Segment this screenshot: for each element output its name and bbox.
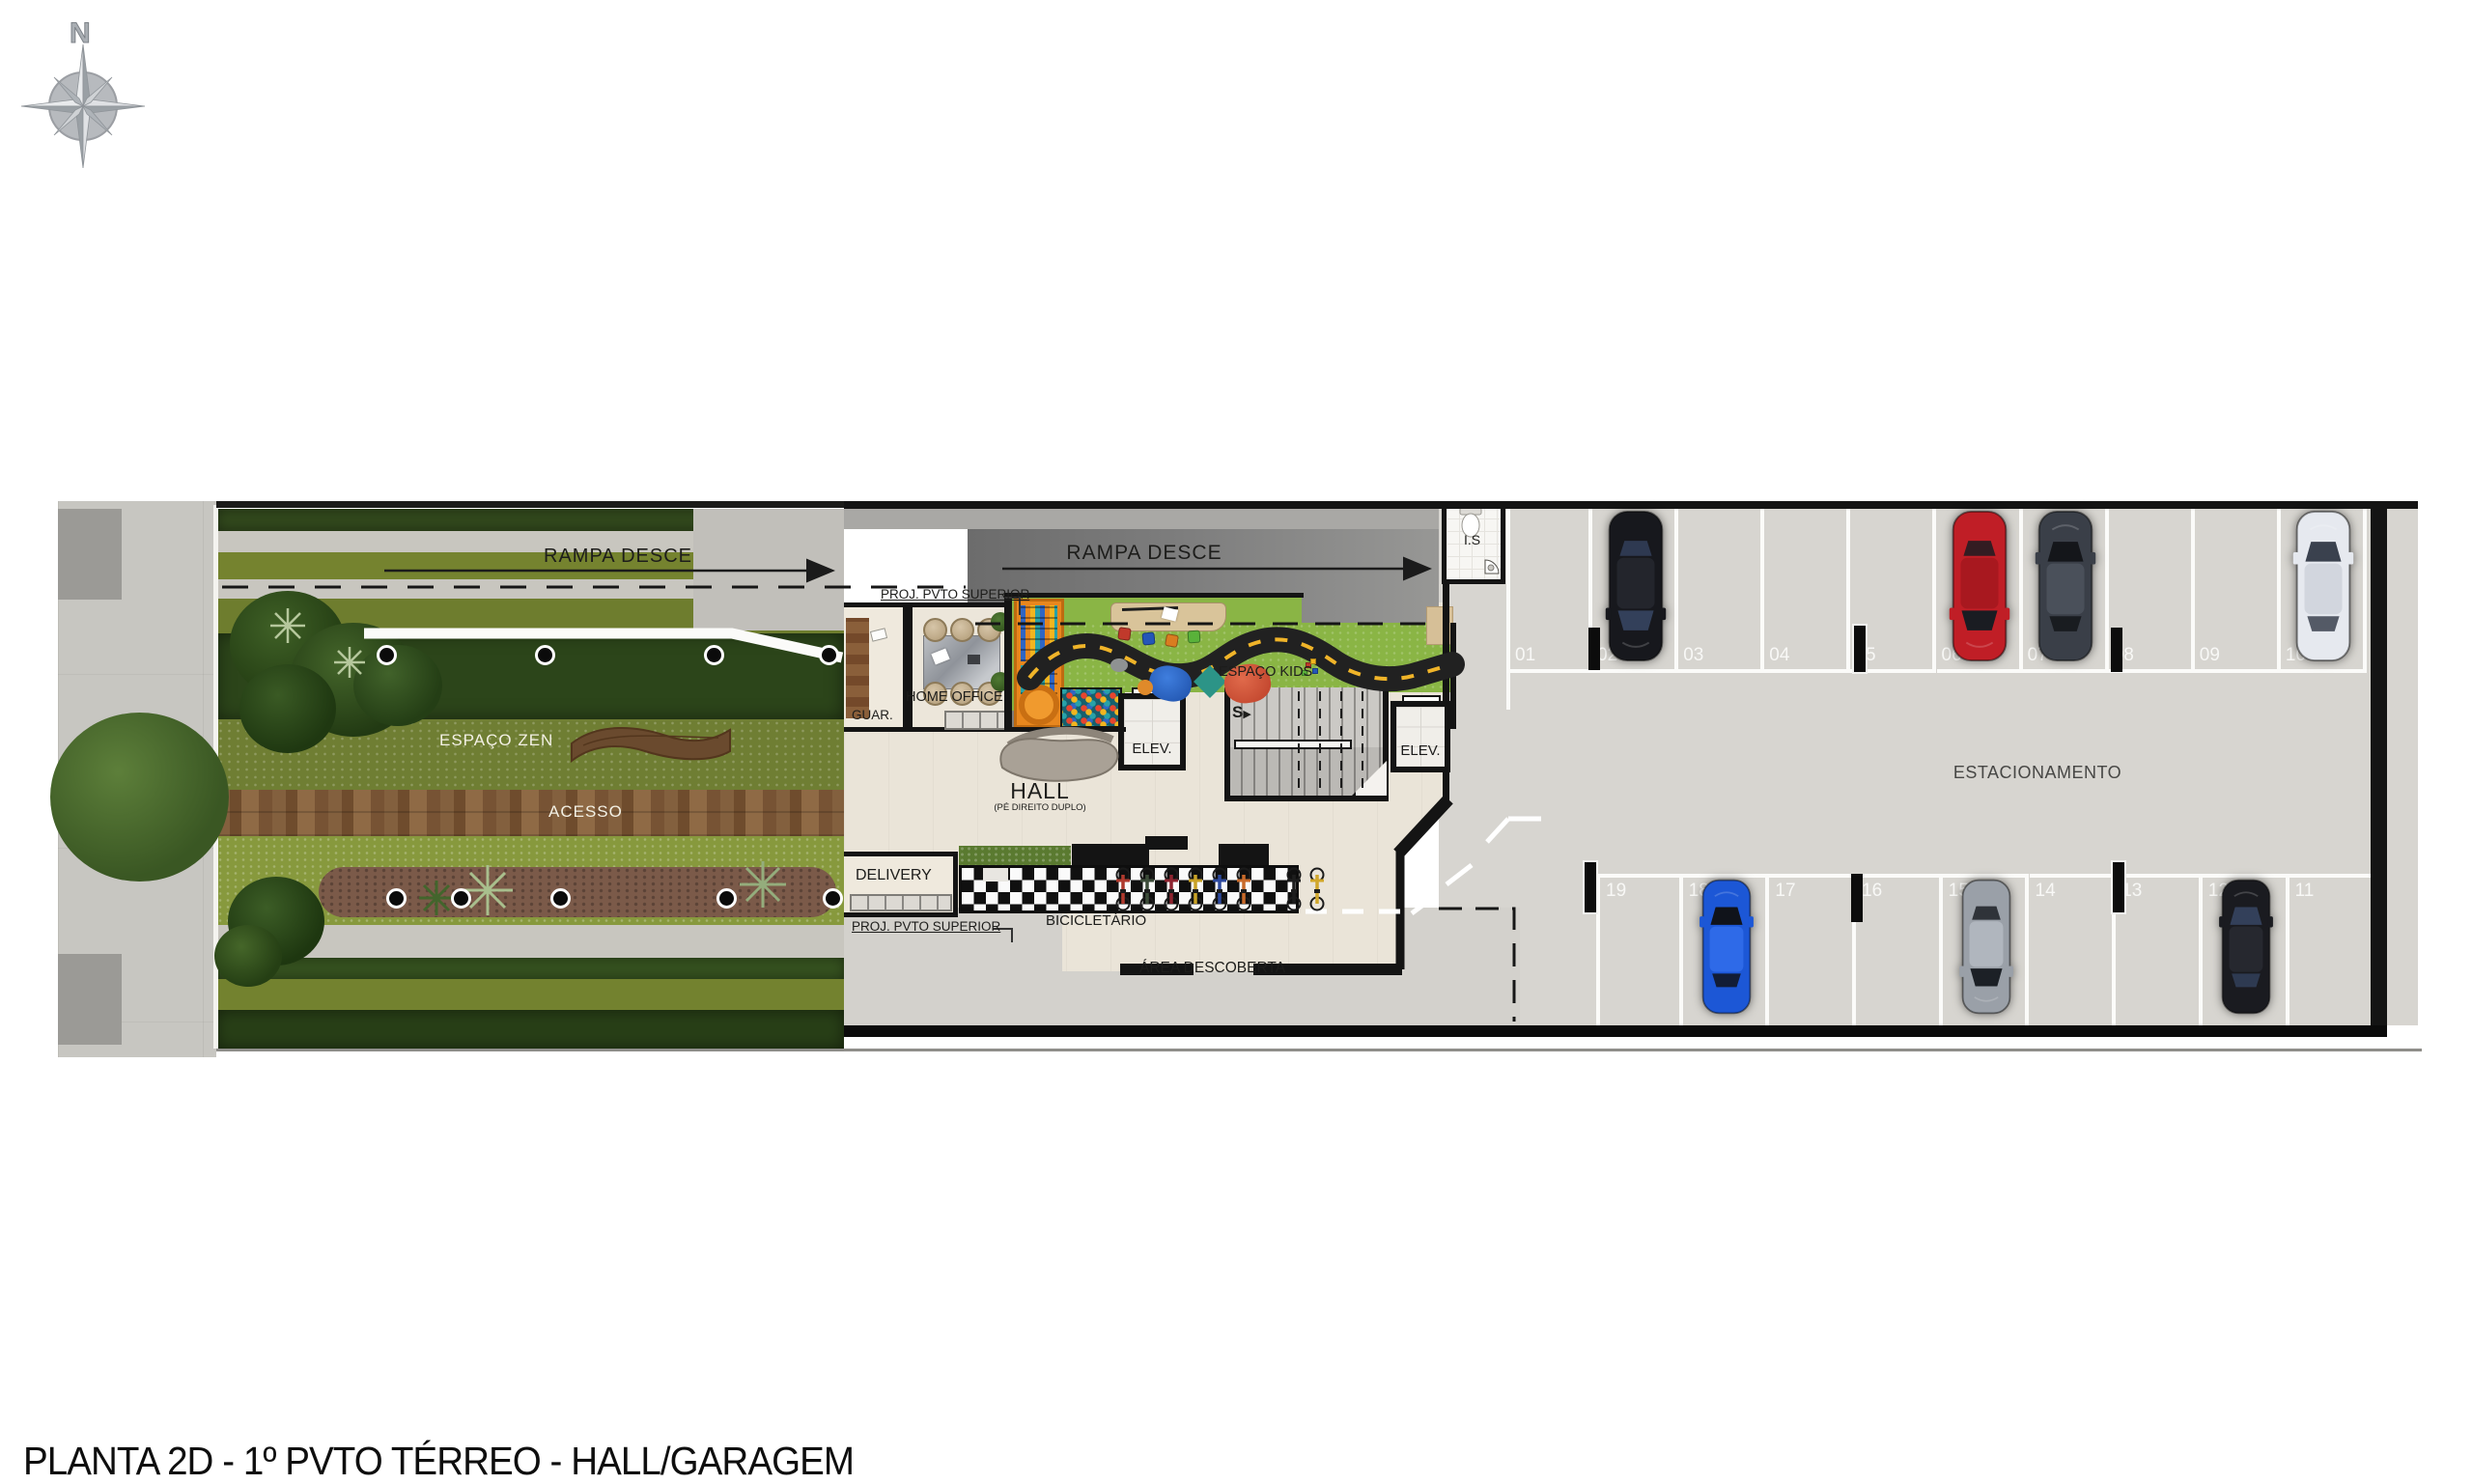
car-icon bbox=[1696, 878, 1757, 1016]
bollard-light-icon bbox=[451, 888, 471, 909]
garden-grass bbox=[216, 979, 844, 1010]
parking-space: 14 bbox=[2030, 874, 2117, 1025]
hall-note-label: (PÉ DIREITO DUPLO) bbox=[972, 802, 1108, 813]
plan-title: PLANTA 2D - 1º PVTO TÉRREO - HALL/GARAGE… bbox=[23, 1439, 854, 1484]
stairs-direction-label: S bbox=[1232, 703, 1243, 721]
kid-chair-icon bbox=[1141, 631, 1155, 645]
bollard-light-icon bbox=[704, 645, 724, 665]
elevator-1: ELEV. bbox=[1118, 693, 1186, 770]
tree-icon bbox=[353, 645, 442, 726]
car-icon bbox=[2035, 509, 2096, 663]
bicycle-icon bbox=[1306, 867, 1328, 911]
garage-pillar bbox=[2113, 862, 2124, 912]
upper-slab-band bbox=[844, 507, 1439, 529]
parking-space: 19 bbox=[1596, 874, 1683, 1025]
tree-icon bbox=[239, 664, 336, 753]
bicycle-icon bbox=[1185, 867, 1206, 911]
bollard-light-icon bbox=[386, 888, 407, 909]
parking-space: 16 bbox=[1856, 874, 1943, 1025]
wall bbox=[1072, 844, 1149, 865]
toy-block-icon bbox=[1312, 668, 1318, 674]
bicycle-icon bbox=[1137, 867, 1158, 911]
kids-label: ESPAÇO KIDS bbox=[1219, 664, 1312, 680]
reception-desk bbox=[846, 618, 869, 718]
parked-car bbox=[2215, 878, 2277, 1016]
parking-space-number: 17 bbox=[1775, 881, 1795, 902]
plan-bottom-line bbox=[216, 1049, 2422, 1051]
palm-icon bbox=[214, 925, 282, 987]
elevator-sill bbox=[1402, 695, 1441, 703]
ramp-label: RAMPA DESCE bbox=[1028, 542, 1260, 565]
elevator-label: ELEV. bbox=[1132, 741, 1171, 757]
wall bbox=[1443, 770, 1449, 801]
proj-label-bottom: PROJ. PVTO SUPERIOR bbox=[852, 919, 1000, 934]
arrow-right-icon: ▶ bbox=[1243, 709, 1250, 720]
plan-bottom-bar bbox=[844, 1025, 2387, 1037]
delivery-label: DELIVERY bbox=[856, 867, 932, 884]
chair-icon bbox=[923, 618, 947, 642]
garage-pillar bbox=[1851, 874, 1863, 922]
elevator-2: ELEV. bbox=[1390, 701, 1450, 772]
parking-space-number: 13 bbox=[2121, 881, 2142, 902]
kid-chair-icon bbox=[1188, 630, 1201, 644]
parked-car bbox=[2292, 509, 2354, 663]
parking-space: 04 bbox=[1764, 505, 1850, 673]
open-area-label: ÁREA DESCOBERTA bbox=[1139, 960, 1285, 977]
parked-car bbox=[1949, 509, 2010, 663]
bollard-light-icon bbox=[550, 888, 571, 909]
garden-hedge-row bbox=[216, 958, 844, 979]
car-icon bbox=[1605, 509, 1667, 663]
curb-ramp-top bbox=[58, 509, 122, 600]
kid-chair-icon bbox=[1165, 633, 1179, 648]
hall-label: HALL bbox=[982, 778, 1098, 804]
bathroom-label: I.S bbox=[1464, 532, 1480, 547]
parking-space: 17 bbox=[1769, 874, 1856, 1025]
checker-notch bbox=[983, 868, 1008, 882]
parking-space: 01 bbox=[1506, 505, 1592, 673]
garage-pillar bbox=[2111, 628, 2122, 672]
parked-car bbox=[1696, 878, 1757, 1016]
bollard-light-icon bbox=[377, 645, 397, 665]
wall bbox=[1004, 593, 1304, 598]
parking-space: 13 bbox=[2116, 874, 2203, 1025]
stairs-handrail bbox=[1234, 740, 1352, 749]
parking-space: 09 bbox=[2195, 505, 2281, 673]
ball-pit bbox=[1060, 687, 1122, 728]
garden-hedge-row bbox=[216, 1010, 844, 1049]
wall bbox=[1219, 844, 1269, 865]
tube-slide-icon bbox=[1019, 685, 1059, 725]
wall bbox=[1004, 593, 1012, 732]
curb-ramp-bottom bbox=[58, 954, 122, 1045]
bicycle-icon bbox=[1209, 867, 1230, 911]
bicycle-icon bbox=[1233, 867, 1254, 911]
car-icon bbox=[2215, 878, 2277, 1016]
bollard-light-icon bbox=[535, 645, 555, 665]
parked-car bbox=[2035, 509, 2096, 663]
garage-east-wall bbox=[2371, 509, 2387, 1025]
proj-label-top: PROJ. PVTO SUPERIOR bbox=[881, 587, 1029, 602]
delivery-lockers bbox=[850, 894, 952, 911]
climb-panel bbox=[1021, 605, 1057, 661]
guard-label: GUAR. bbox=[852, 708, 893, 722]
parking-space-number: 16 bbox=[1862, 881, 1882, 902]
compass-north-label: N bbox=[70, 17, 91, 49]
wall bbox=[1443, 582, 1449, 702]
garden-top-border bbox=[216, 501, 844, 508]
bike-rack-label: BICICLETÁRIO bbox=[1046, 912, 1146, 929]
car-icon bbox=[1949, 509, 2010, 663]
bicycle-icon bbox=[1112, 867, 1134, 911]
rock-icon bbox=[1110, 658, 1128, 672]
parking-label: ESTACIONAMENTO bbox=[1883, 763, 2192, 783]
elevator-label: ELEV. bbox=[1400, 742, 1440, 759]
kid-chair-icon bbox=[1117, 627, 1132, 641]
compass-rose-icon: N bbox=[14, 6, 158, 180]
garage-pillar bbox=[1854, 626, 1866, 672]
parking-space-number: 11 bbox=[2295, 881, 2315, 902]
parking-space-number: 01 bbox=[1515, 645, 1535, 666]
wall bbox=[1145, 836, 1188, 850]
parking-space-number: 09 bbox=[2200, 645, 2220, 666]
parked-car bbox=[1955, 878, 2017, 1016]
zen-label: ESPAÇO ZEN bbox=[439, 731, 553, 750]
hedge-strip bbox=[959, 846, 1071, 865]
wood-deck bbox=[216, 790, 844, 836]
home-office-label: HOME OFFICE bbox=[906, 689, 1003, 705]
bollard-light-icon bbox=[823, 888, 843, 909]
bollard-light-icon bbox=[716, 888, 737, 909]
garage-pillar bbox=[1588, 628, 1600, 670]
parking-space-number: 14 bbox=[2036, 881, 2056, 902]
bean-bag bbox=[1138, 680, 1153, 695]
concrete-corner bbox=[693, 509, 844, 630]
bicycle-icon bbox=[1283, 867, 1305, 911]
bicycle-icon bbox=[1161, 867, 1182, 911]
stairs-direction: S▶ bbox=[1232, 703, 1251, 722]
tree-icon bbox=[50, 713, 229, 882]
laptop bbox=[968, 655, 980, 664]
parking-space: 03 bbox=[1678, 505, 1764, 673]
parking-space-number: 19 bbox=[1606, 881, 1626, 902]
garage-pillar bbox=[1585, 862, 1596, 912]
car-icon bbox=[2292, 509, 2354, 663]
car-icon bbox=[1955, 878, 2017, 1016]
chair-icon bbox=[950, 618, 974, 642]
wall bbox=[1004, 727, 1126, 732]
parking-space-number: 03 bbox=[1683, 645, 1703, 666]
plan-top-border bbox=[844, 501, 2418, 509]
parked-car bbox=[1605, 509, 1667, 663]
garden-ramp-label: RAMPA DESCE bbox=[502, 546, 734, 568]
parking-space: 11 bbox=[2289, 874, 2376, 1025]
wall bbox=[1450, 623, 1456, 729]
access-label: ACESSO bbox=[548, 802, 623, 822]
bollard-light-icon bbox=[819, 645, 839, 665]
play-structure bbox=[1014, 599, 1064, 728]
parking-space-number: 04 bbox=[1769, 645, 1789, 666]
